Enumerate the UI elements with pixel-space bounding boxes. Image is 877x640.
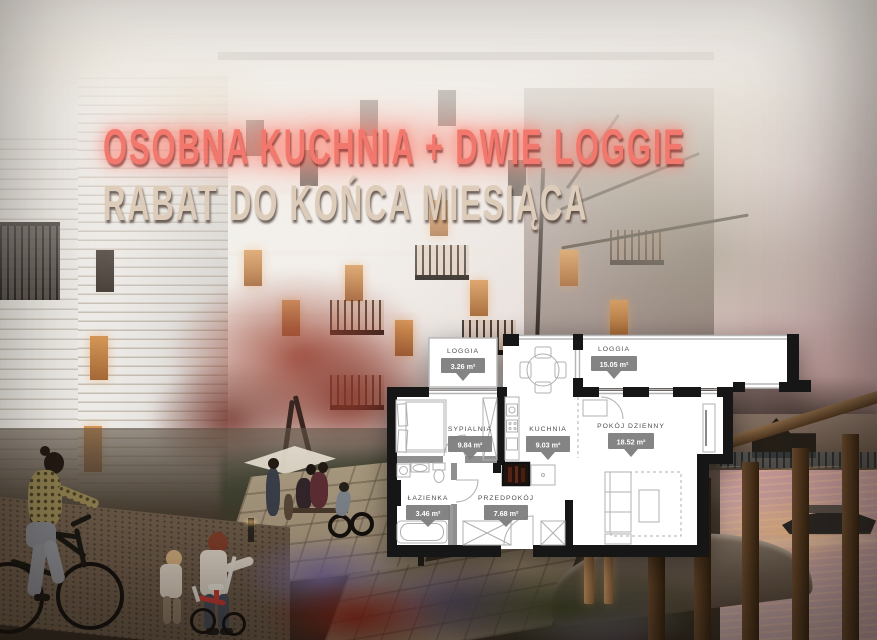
bike-wheel	[328, 514, 352, 538]
tricycle-frame	[214, 588, 219, 604]
svg-text:15.05 m²: 15.05 m²	[600, 360, 629, 369]
svg-text:9.84 m²: 9.84 m²	[458, 441, 483, 450]
svg-text:3.26 m²: 3.26 m²	[451, 362, 476, 371]
path-light	[248, 518, 254, 542]
svg-text:KUCHNIA: KUCHNIA	[529, 426, 567, 433]
railing-post	[842, 434, 859, 640]
grass	[420, 570, 710, 640]
bike-front-wheel	[56, 562, 124, 630]
svg-text:ŁAZIENKA: ŁAZIENKA	[408, 495, 449, 502]
person-head	[268, 458, 279, 469]
person-head	[318, 462, 328, 473]
promo-image: OSOBNA KUCHNIA + DWIE LOGGIE RABAT DO KO…	[0, 0, 877, 640]
svg-text:18.52 m²: 18.52 m²	[617, 438, 646, 447]
plan-shaft	[503, 463, 529, 485]
bike-wheel	[350, 512, 374, 536]
child-leg	[163, 596, 171, 624]
svg-text:SYPIALNIA: SYPIALNIA	[448, 426, 492, 433]
tricycle-wheel	[222, 612, 246, 636]
standing-person	[266, 468, 280, 516]
svg-text:LOGGIA: LOGGIA	[447, 348, 479, 355]
woman-torso	[28, 470, 62, 528]
floor-plan: LOGGIA 3.26 m² LOGGIA 15.05 m² SYPIALNIA…	[383, 334, 813, 558]
child-silhouette	[284, 494, 293, 520]
cyclist-head	[339, 482, 349, 492]
person-head	[306, 464, 316, 475]
svg-text:POKÓJ DZIENNY: POKÓJ DZIENNY	[597, 421, 665, 430]
tricycle-seat	[208, 584, 224, 590]
child-body	[160, 564, 182, 598]
headline-line-1: OSOBNA KUCHNIA + DWIE LOGGIE	[103, 122, 686, 172]
woman-hair-bun	[40, 446, 50, 456]
tricycle-wheel	[190, 608, 216, 634]
red-bush	[268, 582, 443, 640]
svg-text:LOGGIA: LOGGIA	[598, 346, 630, 353]
child-leg	[173, 598, 181, 624]
headline-line-2: RABAT DO KOŃCA MIESIĄCA	[103, 178, 588, 228]
svg-text:PRZEDPOKÓJ: PRZEDPOKÓJ	[478, 493, 534, 502]
woman-shoe	[34, 594, 50, 601]
svg-text:7.68 m²: 7.68 m²	[494, 509, 519, 518]
svg-text:3.46 m²: 3.46 m²	[416, 509, 441, 518]
svg-text:9.03 m²: 9.03 m²	[536, 441, 561, 450]
person-on-bench	[310, 472, 328, 508]
